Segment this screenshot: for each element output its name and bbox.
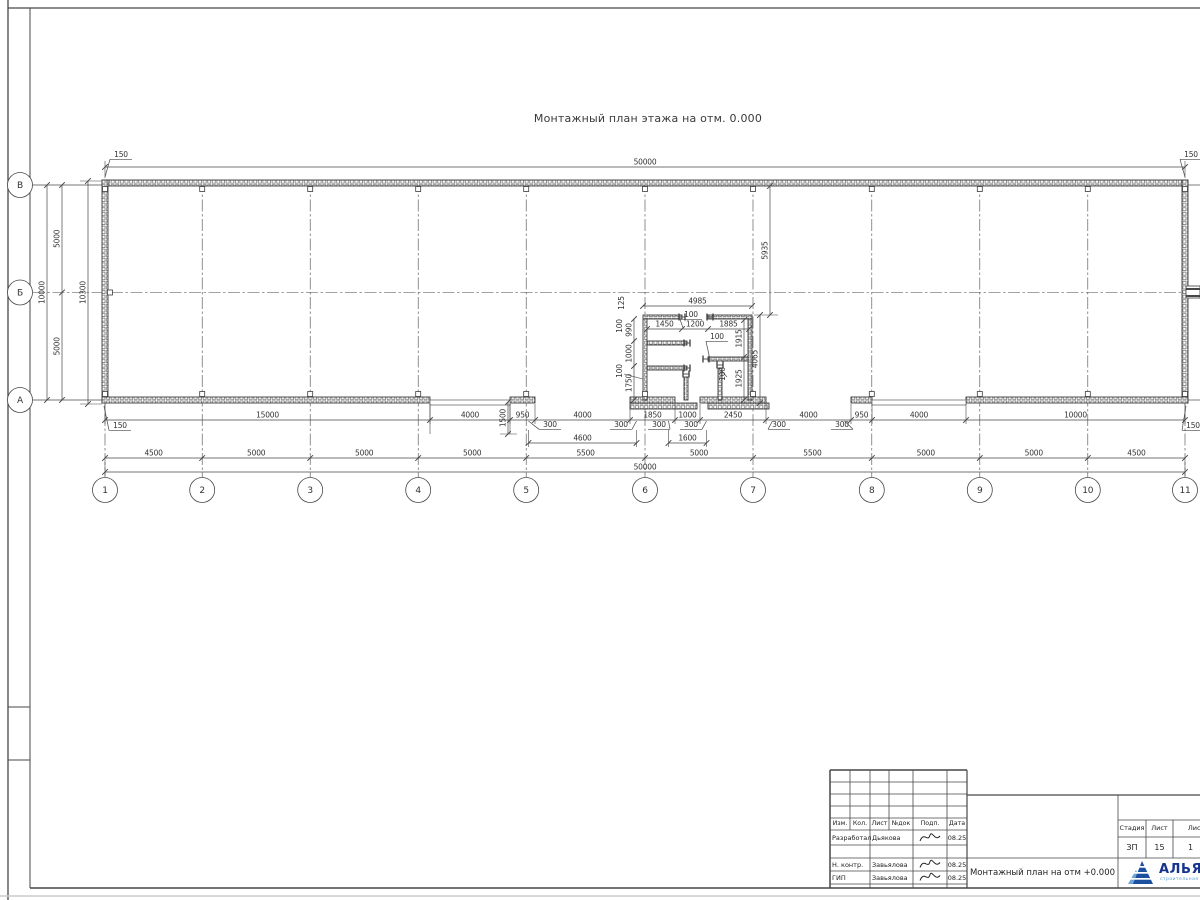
svg-text:4600: 4600 — [573, 434, 592, 443]
svg-text:1000: 1000 — [625, 344, 634, 363]
tb-date-developer: 08.25 — [947, 834, 967, 842]
svg-text:2450: 2450 — [724, 411, 743, 420]
tb-sheets-value: 1 — [1188, 837, 1200, 858]
tb-sheets-header: Листов — [1173, 820, 1200, 837]
svg-text:100: 100 — [718, 367, 727, 381]
svg-text:1600: 1600 — [678, 434, 697, 443]
drawing-title: Монтажный план этажа на отм. 0.000 — [448, 112, 848, 125]
svg-text:150: 150 — [113, 421, 127, 430]
svg-text:1915: 1915 — [735, 329, 744, 348]
svg-text:150: 150 — [114, 150, 128, 159]
svg-text:1450: 1450 — [655, 320, 674, 329]
tb-sheet-header: Лист — [1146, 820, 1173, 837]
svg-text:150: 150 — [1186, 421, 1200, 430]
svg-text:7: 7 — [750, 486, 756, 496]
svg-text:5000: 5000 — [53, 229, 62, 248]
svg-text:3: 3 — [307, 486, 313, 496]
svg-text:4: 4 — [415, 486, 421, 496]
svg-text:300: 300 — [772, 420, 786, 429]
svg-text:50000: 50000 — [634, 463, 657, 472]
svg-text:300: 300 — [835, 420, 849, 429]
svg-text:5: 5 — [523, 486, 529, 496]
svg-text:100: 100 — [684, 310, 698, 319]
svg-text:950: 950 — [855, 411, 869, 420]
svg-text:1500: 1500 — [499, 408, 508, 427]
svg-text:11: 11 — [1179, 486, 1190, 496]
floor-plan: 5000015015010000500050001030015000400095… — [0, 0, 1200, 900]
svg-text:2: 2 — [199, 486, 205, 496]
svg-text:5000: 5000 — [1025, 449, 1044, 458]
tb-col-izm: Изм. — [830, 818, 850, 830]
svg-text:100: 100 — [710, 332, 724, 341]
svg-text:50000: 50000 — [634, 158, 657, 167]
svg-text:1200: 1200 — [686, 320, 705, 329]
svg-text:990: 990 — [625, 323, 634, 337]
svg-text:В: В — [17, 181, 23, 191]
tb-stage-header: Стадия — [1118, 820, 1146, 837]
svg-text:9: 9 — [977, 486, 983, 496]
svg-text:10: 10 — [1082, 486, 1094, 496]
svg-text:300: 300 — [543, 420, 557, 429]
svg-text:8: 8 — [869, 486, 875, 496]
tb-name-ncontrol: Завьялова — [872, 861, 908, 869]
tb-doc-title: Монтажный план на отм +0.000 — [967, 858, 1118, 888]
svg-text:5000: 5000 — [917, 449, 936, 458]
svg-text:300: 300 — [652, 420, 666, 429]
tb-col-podp: Подп. — [913, 818, 947, 830]
tb-date-ncontrol: 08.25 — [947, 861, 967, 869]
svg-text:5935: 5935 — [761, 241, 770, 260]
tb-col-data: Дата — [947, 818, 967, 830]
svg-text:Б: Б — [17, 289, 23, 299]
svg-text:4065: 4065 — [751, 349, 760, 368]
tb-col-list: Лист — [870, 818, 889, 830]
svg-text:4500: 4500 — [144, 449, 163, 458]
svg-text:1000: 1000 — [678, 411, 697, 420]
svg-text:4500: 4500 — [1127, 449, 1146, 458]
tb-stage-value: ЗП — [1118, 837, 1146, 858]
tb-date-gip: 08.25 — [947, 874, 967, 882]
svg-text:300: 300 — [614, 420, 628, 429]
svg-text:950: 950 — [516, 411, 530, 420]
svg-text:5000: 5000 — [355, 449, 374, 458]
svg-text:4000: 4000 — [799, 411, 818, 420]
svg-text:10000: 10000 — [38, 281, 47, 304]
svg-text:150: 150 — [1184, 150, 1198, 159]
svg-text:100: 100 — [615, 364, 624, 378]
tb-name-developer: Дьякова — [872, 834, 901, 842]
svg-text:1: 1 — [102, 486, 108, 496]
svg-text:4000: 4000 — [910, 411, 929, 420]
svg-text:125: 125 — [617, 296, 626, 310]
tb-name-gip: Завьялова — [872, 874, 908, 882]
tb-role-developer: Разработал — [832, 834, 871, 842]
svg-text:15000: 15000 — [256, 411, 279, 420]
svg-text:10000: 10000 — [1064, 411, 1087, 420]
company-logo-icon — [1126, 859, 1156, 886]
tb-col-kol: Кол. — [850, 818, 870, 830]
svg-text:300: 300 — [684, 420, 698, 429]
tb-sheet-value: 15 — [1146, 837, 1173, 858]
svg-text:100: 100 — [615, 319, 624, 333]
svg-text:А: А — [17, 396, 24, 406]
drawing-sheet: { "sheet": { "drawing_title": "Монтажный… — [0, 0, 1200, 900]
svg-text:6: 6 — [642, 486, 648, 496]
tb-col-ndok: №док — [889, 818, 913, 830]
svg-text:10300: 10300 — [79, 281, 88, 304]
svg-text:1925: 1925 — [735, 369, 744, 388]
tb-role-gip: ГИП — [832, 874, 846, 882]
svg-text:5000: 5000 — [463, 449, 482, 458]
tb-role-ncontrol: Н. контр. — [832, 861, 863, 869]
svg-text:1850: 1850 — [643, 411, 662, 420]
svg-text:5000: 5000 — [247, 449, 266, 458]
svg-text:5500: 5500 — [803, 449, 822, 458]
svg-text:5000: 5000 — [690, 449, 709, 458]
svg-text:5500: 5500 — [576, 449, 595, 458]
svg-text:4000: 4000 — [461, 411, 480, 420]
svg-text:1885: 1885 — [719, 320, 738, 329]
company-tagline: строительная компания — [1160, 877, 1200, 882]
svg-text:5000: 5000 — [53, 337, 62, 356]
company-name: АЛЬЯНС — [1159, 862, 1200, 877]
svg-text:4000: 4000 — [573, 411, 592, 420]
svg-text:4985: 4985 — [688, 297, 707, 306]
